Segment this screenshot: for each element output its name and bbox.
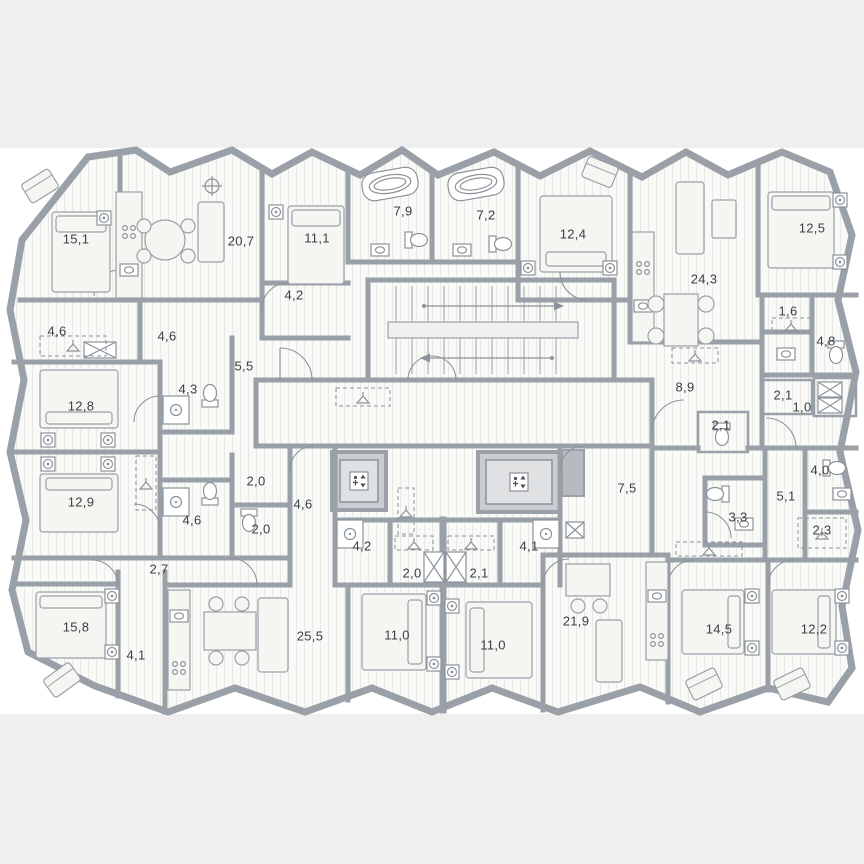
sofa	[258, 598, 288, 672]
room-area-label: 1,0	[793, 399, 812, 414]
room-area-label: 8,9	[676, 379, 695, 394]
washbasin-icon	[453, 244, 471, 256]
room-area-label: 2,0	[403, 565, 422, 580]
room-area-label: 4,6	[158, 328, 177, 343]
coffee-table	[712, 200, 736, 238]
toilet-icon	[202, 385, 218, 408]
room-area-label: 12,2	[801, 621, 828, 636]
room-area-label: 4,3	[179, 381, 198, 396]
room-area-label: 4,6	[294, 496, 313, 511]
sofa	[198, 202, 224, 262]
room-area-label: 2,1	[712, 417, 731, 432]
room-area-label: 4,2	[285, 287, 304, 302]
stair-landing	[388, 322, 578, 338]
room-area-label: 4,1	[520, 538, 539, 553]
toilet-icon	[405, 232, 428, 248]
room-area-label: 15,8	[63, 619, 90, 634]
room-area-label: 12,5	[799, 220, 826, 235]
room-area-label: 4,6	[48, 323, 67, 338]
service-shaft	[562, 450, 584, 496]
elevator-icon	[510, 473, 528, 491]
kitchen-counter	[116, 192, 142, 298]
washbasin-icon	[833, 488, 851, 500]
room-area-label: 2,1	[774, 387, 793, 402]
room-area-label: 25,5	[297, 628, 324, 643]
sofa	[676, 182, 704, 254]
room-area-label: 7,2	[477, 207, 496, 222]
toilet-icon	[202, 483, 218, 506]
kitchen-sink-icon	[170, 610, 188, 622]
kitchen-sink-icon	[648, 590, 666, 602]
room-area-label: 2,0	[252, 521, 271, 536]
room-area-label: 11,0	[384, 627, 410, 642]
kitchen-counter	[646, 562, 668, 660]
room-area-label: 7,5	[618, 480, 637, 495]
room-area-label: 2,1	[470, 565, 489, 580]
room-area-label: 5,5	[235, 358, 254, 373]
room-area-label: 2,3	[813, 522, 832, 537]
washbasin-icon	[371, 244, 389, 256]
room-area-label: 12,8	[68, 398, 95, 413]
room-area-label: 2,0	[247, 473, 266, 488]
room-area-label: 12,4	[560, 226, 587, 241]
room-area-label: 5,1	[777, 488, 796, 503]
room-area-label: 12,9	[68, 494, 95, 509]
dining-table	[204, 612, 256, 650]
room-area-label: 2,7	[150, 561, 169, 576]
kitchen-counter	[168, 590, 190, 690]
washbasin-icon	[777, 348, 795, 360]
room-area-label: 4,1	[127, 647, 146, 662]
floor-plan-svg: 15,120,711,17,97,212,424,312,54,64,64,25…	[0, 0, 864, 864]
room-area-label: 1,6	[779, 303, 798, 318]
room-area-label: 21,9	[563, 613, 590, 628]
room-area-label: 11,1	[304, 230, 330, 245]
room-area-label: 3,3	[729, 509, 748, 524]
room-area-label: 14,5	[706, 621, 733, 636]
room-area-label: 7,9	[394, 203, 413, 218]
elevator-icon	[350, 472, 368, 490]
room-area-label: 4,2	[353, 538, 372, 553]
toilet-icon	[707, 486, 730, 502]
room-area-label: 4,8	[817, 333, 836, 348]
shower-icon	[163, 396, 189, 424]
room-area-label: 24,3	[691, 271, 718, 286]
toilet-icon	[489, 236, 512, 252]
room-area-label: 11,0	[480, 637, 506, 652]
sofa	[596, 620, 622, 682]
dining-table	[566, 564, 610, 596]
dining-table	[664, 294, 698, 346]
room-area-label: 4,0	[811, 462, 830, 477]
kitchen-sink-icon	[120, 264, 138, 276]
room-area-label: 4,6	[183, 512, 202, 527]
floor-plan: 15,120,711,17,97,212,424,312,54,64,64,25…	[0, 0, 864, 864]
kitchen-counter	[632, 232, 654, 342]
room-area-label: 20,7	[228, 233, 255, 248]
room-area-label: 15,1	[63, 231, 90, 246]
